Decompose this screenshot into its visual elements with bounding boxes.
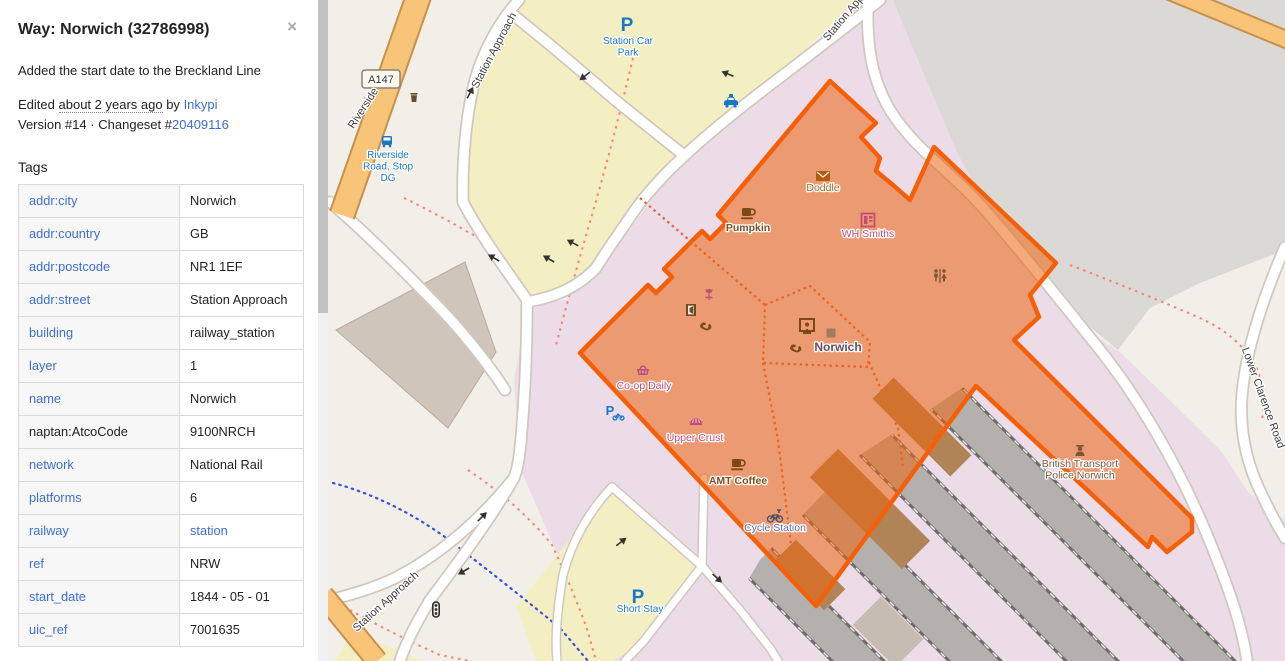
label-british-transport-police: British TransportPolice Norwich xyxy=(1042,458,1119,482)
changeset-prefix: Changeset # xyxy=(98,117,172,132)
label-cycle-station: Cycle Station xyxy=(744,522,806,534)
edited-time: about 2 years ago xyxy=(59,97,163,113)
tags-table-body: addr:cityNorwichaddr:countryGBaddr:postc… xyxy=(19,184,304,646)
tag-value: Norwich xyxy=(190,391,236,406)
map-canvas[interactable]: P P xyxy=(328,0,1285,661)
tag-row: nameNorwich xyxy=(19,382,304,415)
tag-value: GB xyxy=(190,226,209,241)
label-pumpkin: Pumpkin xyxy=(726,222,770,234)
tag-value[interactable]: station xyxy=(190,523,228,538)
mail-icon-doddle xyxy=(816,171,830,181)
tag-value: Station Approach xyxy=(190,292,287,307)
label-short-stay: Short Stay xyxy=(617,604,664,615)
tag-row: addr:cityNorwich xyxy=(19,184,304,217)
label-wh-smiths: WH Smiths xyxy=(842,228,895,240)
tag-key[interactable]: start_date xyxy=(29,589,86,604)
tag-value: NR1 1EF xyxy=(190,259,243,274)
tag-value: NRW xyxy=(190,556,220,571)
tag-row: layer1 xyxy=(19,349,304,382)
tag-row: buildingrailway_station xyxy=(19,316,304,349)
label-norwich-station: Norwich xyxy=(814,340,861,354)
edited-prefix: Edited xyxy=(18,97,55,112)
tag-key[interactable]: addr:city xyxy=(29,193,77,208)
tag-row: uic_ref7001635 xyxy=(19,613,304,646)
edited-by-word: by xyxy=(166,97,180,112)
version-line: Version #14 · Changeset #20409116 xyxy=(18,117,303,132)
tag-key[interactable]: addr:street xyxy=(29,292,90,307)
label-co-op-daily: Co-op Daily xyxy=(617,380,673,392)
tag-key[interactable]: addr:country xyxy=(29,226,100,241)
tag-value: Norwich xyxy=(190,193,236,208)
tag-key[interactable]: ref xyxy=(29,556,44,571)
route-badge-a147: A147 xyxy=(368,74,394,86)
tag-value: 7001635 xyxy=(190,622,240,637)
tag-row: naptan:AtcoCode9100NRCH xyxy=(19,415,304,448)
tag-row: addr:countryGB xyxy=(19,217,304,250)
scrollbar-thumb[interactable] xyxy=(318,0,328,313)
tags-heading: Tags xyxy=(18,159,303,175)
close-icon[interactable]: × xyxy=(281,14,303,39)
changeset-comment: Added the start date to the Breckland Li… xyxy=(18,63,303,78)
tag-row: refNRW xyxy=(19,547,304,580)
page-title: Way: Norwich (32786998) xyxy=(18,20,209,39)
separator-dot: · xyxy=(90,117,94,132)
label-amt-coffee: AMT Coffee xyxy=(709,475,767,487)
tag-key[interactable]: addr:postcode xyxy=(29,259,110,274)
toilets-icon xyxy=(934,269,946,283)
tag-row: networkNational Rail xyxy=(19,448,304,481)
tag-row: railwaystation xyxy=(19,514,304,547)
editor-link[interactable]: Inkypi xyxy=(184,97,218,112)
tag-row: start_date1844 - 05 - 01 xyxy=(19,580,304,613)
tag-key[interactable]: uic_ref xyxy=(29,622,67,637)
tag-row: addr:postcodeNR1 1EF xyxy=(19,250,304,283)
tag-value: 1844 - 05 - 01 xyxy=(190,589,270,604)
version-label: Version #14 xyxy=(18,117,87,132)
tag-value: railway_station xyxy=(190,325,275,340)
tag-key[interactable]: railway xyxy=(29,523,69,538)
tag-value: 9100NRCH xyxy=(190,424,255,439)
door-icon xyxy=(686,304,696,316)
changeset-link[interactable]: 20409116 xyxy=(172,117,229,132)
sidebar-scrollbar[interactable] xyxy=(318,0,328,661)
label-upper-crust: Upper Crust xyxy=(667,432,724,444)
edited-line: Edited about 2 years ago by Inkypi xyxy=(18,95,303,115)
tag-key[interactable]: network xyxy=(29,457,74,472)
tag-key[interactable]: layer xyxy=(29,358,57,373)
tag-row: platforms6 xyxy=(19,481,304,514)
building-square-icon xyxy=(827,329,836,338)
label-doddle: Doddle xyxy=(806,182,839,194)
tag-key: naptan:AtcoCode xyxy=(29,424,128,439)
tags-table: addr:cityNorwichaddr:countryGBaddr:postc… xyxy=(18,184,304,647)
tag-key[interactable]: platforms xyxy=(29,490,82,505)
tag-key[interactable]: name xyxy=(29,391,61,406)
parking-icon-station-car-park xyxy=(621,15,634,36)
tag-key[interactable]: building xyxy=(29,325,73,340)
tag-row: addr:streetStation Approach xyxy=(19,283,304,316)
way-detail-panel: Way: Norwich (32786998) × Added the star… xyxy=(0,0,318,661)
tag-value: National Rail xyxy=(190,457,263,472)
tag-value: 1 xyxy=(190,358,197,373)
tag-value: 6 xyxy=(190,490,197,505)
